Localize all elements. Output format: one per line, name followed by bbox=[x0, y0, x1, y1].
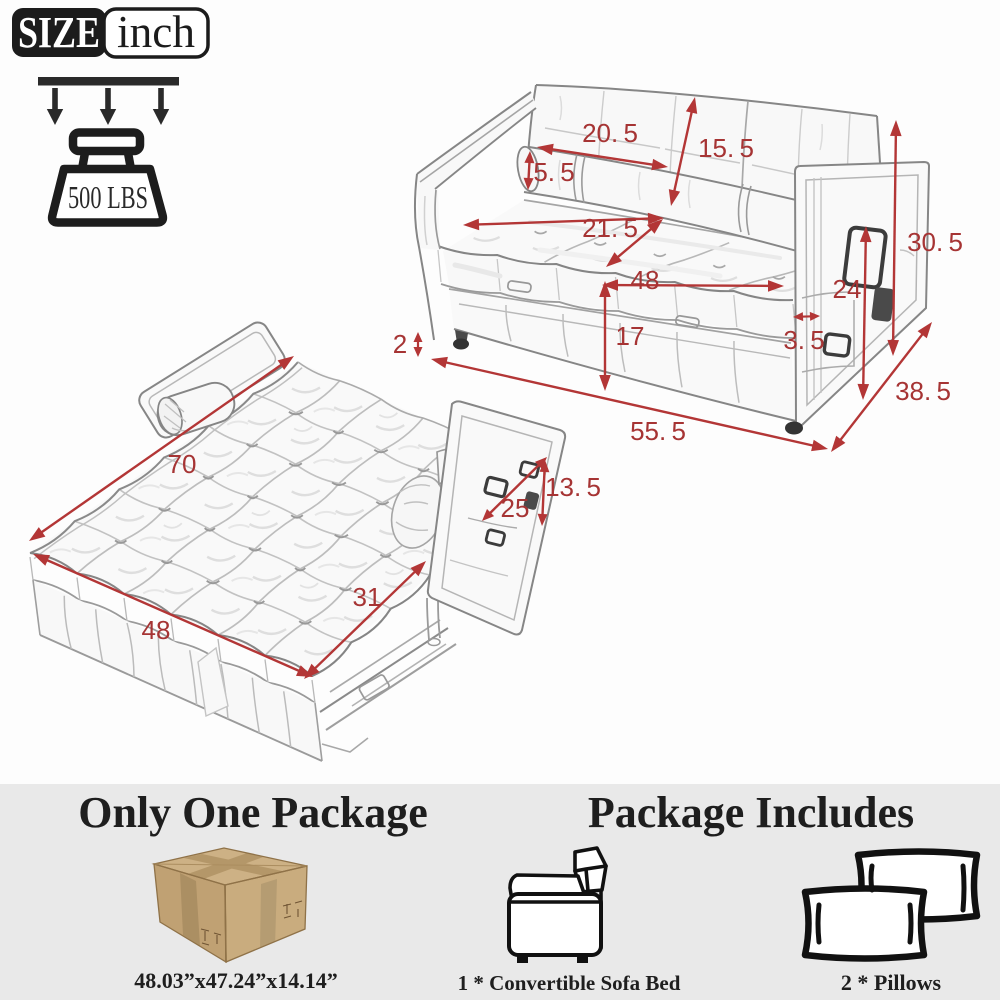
svg-text:inch: inch bbox=[117, 6, 195, 57]
svg-text:3. 5: 3. 5 bbox=[783, 325, 824, 355]
svg-text:2 * Pillows: 2 * Pillows bbox=[841, 970, 942, 995]
svg-text:21. 5: 21. 5 bbox=[582, 213, 638, 243]
svg-text:70: 70 bbox=[168, 449, 197, 479]
svg-text:1 * Convertible Sofa Bed: 1 * Convertible Sofa Bed bbox=[458, 971, 681, 995]
svg-text:30. 5: 30. 5 bbox=[907, 227, 963, 257]
svg-text:25: 25 bbox=[501, 493, 530, 523]
svg-text:Only One Package: Only One Package bbox=[78, 788, 428, 837]
svg-text:2: 2 bbox=[393, 329, 407, 359]
svg-text:500 LBS: 500 LBS bbox=[68, 179, 148, 215]
svg-text:5. 5: 5. 5 bbox=[533, 157, 574, 187]
svg-text:SIZE: SIZE bbox=[18, 8, 100, 57]
svg-text:48.03”x47.24”x14.14”: 48.03”x47.24”x14.14” bbox=[134, 968, 338, 993]
svg-text:55. 5: 55. 5 bbox=[630, 416, 686, 446]
svg-text:15. 5: 15. 5 bbox=[698, 133, 754, 163]
svg-text:48: 48 bbox=[142, 615, 171, 645]
svg-text:13. 5: 13. 5 bbox=[545, 472, 601, 502]
svg-text:24: 24 bbox=[833, 274, 862, 304]
svg-text:31: 31 bbox=[353, 582, 382, 612]
svg-text:48: 48 bbox=[631, 265, 660, 295]
svg-text:17: 17 bbox=[616, 321, 645, 351]
svg-text:20. 5: 20. 5 bbox=[582, 118, 638, 148]
svg-text:Package Includes: Package Includes bbox=[588, 788, 914, 837]
svg-text:38. 5: 38. 5 bbox=[895, 376, 951, 406]
